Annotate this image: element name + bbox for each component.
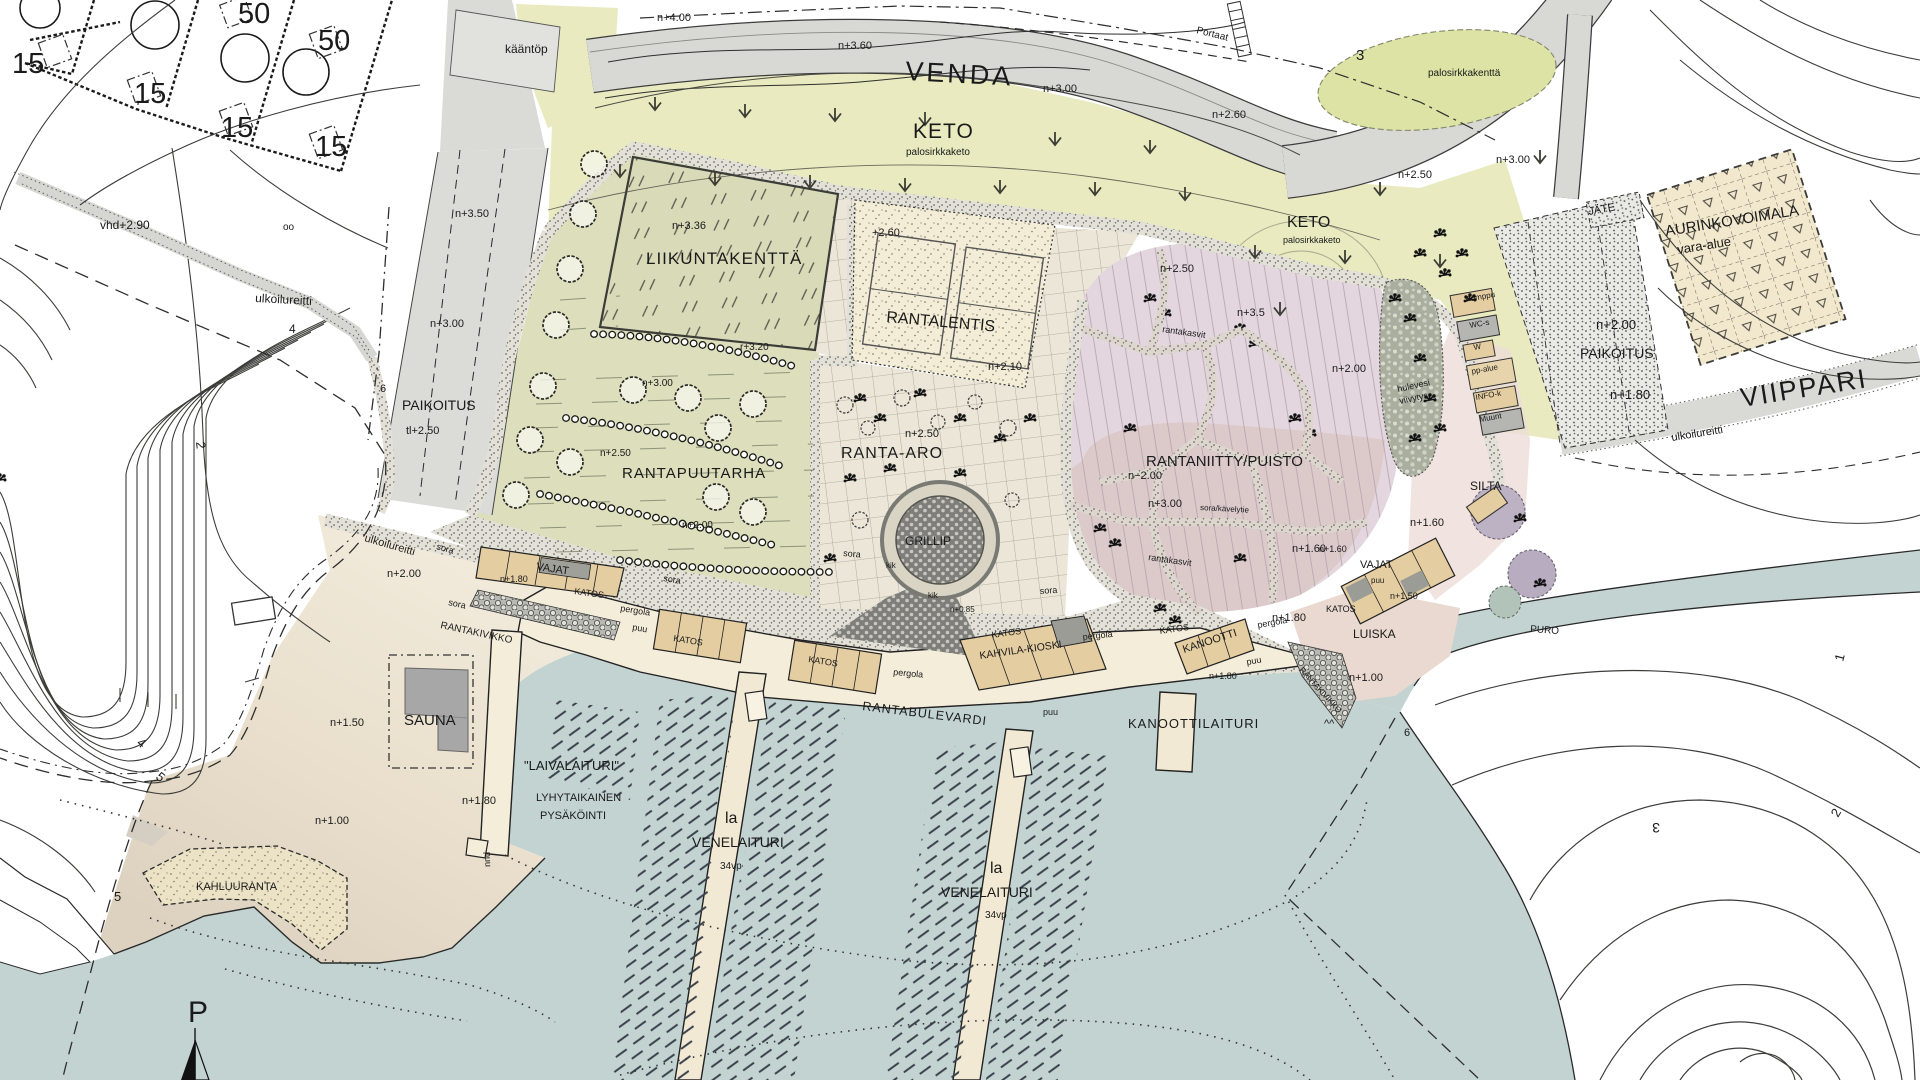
svg-text:n+3.36: n+3.36	[672, 220, 706, 232]
svg-text:SILTA: SILTA	[1470, 479, 1502, 493]
svg-text:n+3.00: n+3.00	[1148, 498, 1182, 510]
svg-text:sora: sora	[843, 548, 861, 559]
svg-text:3: 3	[1652, 820, 1660, 836]
svg-text:n+3.00: n+3.00	[1496, 154, 1530, 166]
svg-text:n+2.10: n+2.10	[988, 361, 1022, 373]
svg-text:RANTAPUUTARHA: RANTAPUUTARHA	[622, 465, 766, 482]
svg-text:n+2.50: n+2.50	[1398, 169, 1432, 181]
svg-text:n+1.60: n+1.60	[1410, 517, 1444, 529]
svg-text:P: P	[188, 996, 208, 1029]
svg-text:VENELAITURI: VENELAITURI	[941, 884, 1033, 900]
svg-text:palosirkkaketo: palosirkkaketo	[906, 147, 970, 158]
svg-text:sora: sora	[1039, 585, 1057, 596]
svg-text:PAIKOITUS: PAIKOITUS	[402, 397, 476, 413]
svg-text:RANTANIITTY/PUISTO: RANTANIITTY/PUISTO	[1146, 453, 1303, 470]
svg-text:6: 6	[1404, 727, 1410, 739]
svg-text:n+2.50: n+2.50	[1160, 263, 1194, 275]
svg-text:GRILLIP: GRILLIP	[905, 534, 951, 548]
svg-text:n+2.00: n+2.00	[1596, 317, 1636, 332]
svg-text:SAUNA: SAUNA	[404, 712, 456, 729]
svg-text:n+2.00: n+2.00	[387, 568, 421, 580]
svg-text:34vp: 34vp	[720, 861, 742, 872]
svg-text:15: 15	[12, 48, 44, 80]
svg-text:PYSÄKÖINTI: PYSÄKÖINTI	[540, 810, 606, 822]
svg-text:kik: kik	[886, 561, 897, 570]
svg-text:n−2.00: n−2.00	[1128, 470, 1162, 482]
svg-text:n+1.00: n+1.00	[315, 815, 349, 827]
svg-text:vhd+2.90: vhd+2.90	[100, 218, 150, 232]
svg-text:LUISKA: LUISKA	[1353, 627, 1396, 641]
svg-text:+2.60: +2.60	[872, 227, 900, 239]
svg-text:n+3.00: n+3.00	[1043, 83, 1077, 95]
svg-text:n+4.00: n+4.00	[657, 12, 691, 24]
svg-text:palosirkkakenttä: palosirkkakenttä	[1428, 68, 1501, 79]
svg-text:kääntöp: kääntöp	[505, 42, 548, 56]
svg-text:puu: puu	[483, 852, 494, 867]
svg-text:KAHLUURANTA: KAHLUURANTA	[196, 881, 278, 893]
svg-text:ulkoilureitti: ulkoilureitti	[255, 291, 312, 308]
svg-text:^^: ^^	[1324, 718, 1335, 730]
svg-text:oo: oo	[283, 222, 295, 233]
svg-text:PURO: PURO	[1530, 624, 1560, 637]
svg-text:n+1.50: n+1.50	[1390, 591, 1418, 601]
svg-text:n+2.00: n+2.00	[1332, 363, 1366, 375]
svg-text:n+3.00: n+3.00	[642, 378, 673, 389]
svg-text:n+1.80: n+1.80	[500, 574, 528, 584]
svg-text:5: 5	[114, 889, 121, 904]
svg-text:LYHYTAIKAINEN: LYHYTAIKAINEN	[536, 792, 621, 804]
svg-text:n+3.5: n+3.5	[1237, 307, 1265, 319]
svg-text:n+0.85: n+0.85	[950, 605, 975, 614]
svg-text:puu: puu	[1371, 576, 1384, 585]
svg-text:n+2.50: n+2.50	[905, 428, 939, 440]
svg-text:puu: puu	[1043, 707, 1058, 717]
svg-text:palosirkkaketo: palosirkkaketo	[1283, 235, 1341, 245]
svg-text:PAIKOITUS: PAIKOITUS	[1580, 345, 1654, 361]
svg-text:n+1.00: n+1.00	[1349, 672, 1383, 684]
svg-text:VENELAITURI: VENELAITURI	[692, 834, 784, 850]
svg-text:RANTA-ARO: RANTA-ARO	[841, 445, 943, 462]
svg-text:15: 15	[221, 112, 253, 144]
svg-text:3: 3	[1356, 47, 1364, 64]
svg-text:la: la	[725, 810, 738, 827]
svg-text:15: 15	[315, 131, 347, 163]
svg-text:15: 15	[134, 78, 166, 110]
svg-text:n+3.60: n+3.60	[838, 40, 872, 52]
svg-text:n+1.60: n+1.60	[1319, 544, 1347, 554]
svg-text:KETO: KETO	[1287, 214, 1330, 231]
svg-text:50: 50	[318, 25, 350, 57]
svg-text:n+2.50: n+2.50	[600, 448, 631, 459]
svg-text:4: 4	[289, 322, 296, 336]
svg-text:VENDA: VENDA	[905, 56, 1014, 92]
svg-text:KANOOTTILAITURI: KANOOTTILAITURI	[1128, 716, 1259, 731]
svg-text:n+1.50: n+1.50	[330, 717, 364, 729]
svg-text:kik: kik	[928, 591, 939, 600]
svg-text:n+1.80: n+1.80	[462, 795, 496, 807]
svg-text:n+2.60: n+2.60	[1212, 109, 1246, 121]
svg-text:la: la	[990, 860, 1003, 877]
svg-text:LIIKUNTAKENTTÄ: LIIKUNTAKENTTÄ	[646, 249, 802, 268]
svg-text:n+2.00: n+2.00	[682, 520, 713, 531]
svg-text:KATOS: KATOS	[1326, 604, 1356, 614]
svg-text:n+1.80: n+1.80	[1209, 671, 1237, 681]
svg-text:"LAIVALAITURI": "LAIVALAITURI"	[524, 758, 619, 773]
svg-text:50: 50	[238, 0, 270, 30]
svg-text:r+3.20: r+3.20	[740, 342, 769, 353]
svg-text:KETO: KETO	[913, 120, 974, 143]
svg-text:n+3.00: n+3.00	[430, 318, 464, 330]
svg-text:34vp: 34vp	[985, 910, 1007, 921]
svg-text:n+3.50: n+3.50	[455, 208, 489, 220]
svg-text:6: 6	[380, 383, 386, 395]
svg-text:n+1.80: n+1.80	[1610, 387, 1650, 402]
svg-text:tl+2.50: tl+2.50	[406, 425, 439, 437]
svg-text:VAJAT: VAJAT	[1360, 559, 1393, 571]
